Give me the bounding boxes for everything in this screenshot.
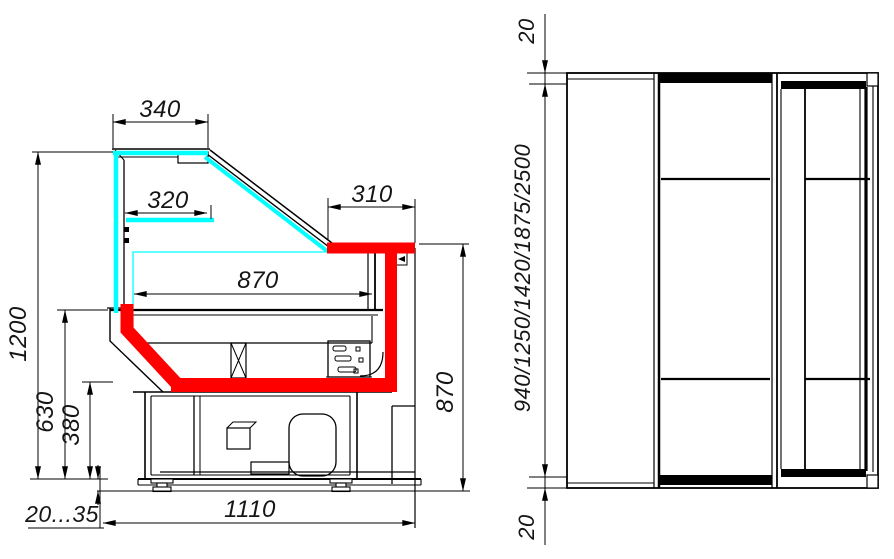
front-glass-outer [210, 150, 332, 243]
dim-label-340: 340 [139, 96, 181, 123]
top-frame-bar [659, 73, 772, 83]
dim-label-310: 310 [351, 181, 393, 208]
base-cabinet [97, 392, 470, 492]
dim-label-380: 380 [58, 404, 85, 446]
corner-block [867, 73, 878, 86]
machinery-well [231, 341, 383, 380]
display-case-drawing: 340 320 310 870 1200 630 [0, 0, 894, 559]
dim-label-length-options: 940/1250/1420/1875/2500 [510, 144, 535, 413]
front-bumper-panel [127, 304, 178, 385]
shelf-bracket [124, 238, 129, 243]
dimension-counter-top-width: 310 [328, 181, 415, 240]
door-top-rail [781, 81, 866, 89]
front-glass [205, 157, 327, 251]
dimension-foot-range: 20...35 [24, 465, 104, 528]
door-bottom-rail [781, 469, 866, 477]
elevation-body [567, 73, 878, 488]
dim-label-630: 630 [32, 391, 59, 433]
glass-panels [113, 151, 328, 313]
dim-label-870-height: 870 [432, 371, 459, 413]
dimension-base-depth: 1110 [103, 496, 415, 523]
dimension-lower-panel-height: 380 [58, 382, 113, 479]
shelf-bracket [124, 227, 129, 232]
dimension-well-depth: 870 [134, 267, 372, 294]
dim-label-1200: 1200 [5, 306, 32, 362]
display-area-outline [133, 252, 328, 310]
dimension-counter-height: 870 [419, 244, 469, 491]
dimension-shelf-width: 320 [125, 187, 211, 219]
dim-label-320: 320 [147, 187, 189, 214]
cross-section-view: 340 320 310 870 1200 630 [5, 96, 470, 528]
condensate-box [227, 428, 250, 449]
end-elevation-view: 20 940/1250/1420/1875/2500 20 [510, 14, 878, 545]
corner-block [867, 475, 878, 488]
dim-label-20-35: 20...35 [24, 501, 99, 527]
dimension-canopy-width: 340 [113, 96, 208, 148]
dim-label-870-depth: 870 [237, 267, 279, 294]
dim-label-20-bottom: 20 [514, 514, 539, 541]
compressor [289, 414, 336, 476]
dimension-front-height: 630 [32, 310, 108, 479]
dim-label-1110: 1110 [224, 496, 276, 523]
technical-drawing-canvas: 340 320 310 870 1200 630 [0, 0, 894, 559]
dim-label-20-top: 20 [514, 18, 539, 45]
bottom-frame-bar [659, 475, 772, 485]
